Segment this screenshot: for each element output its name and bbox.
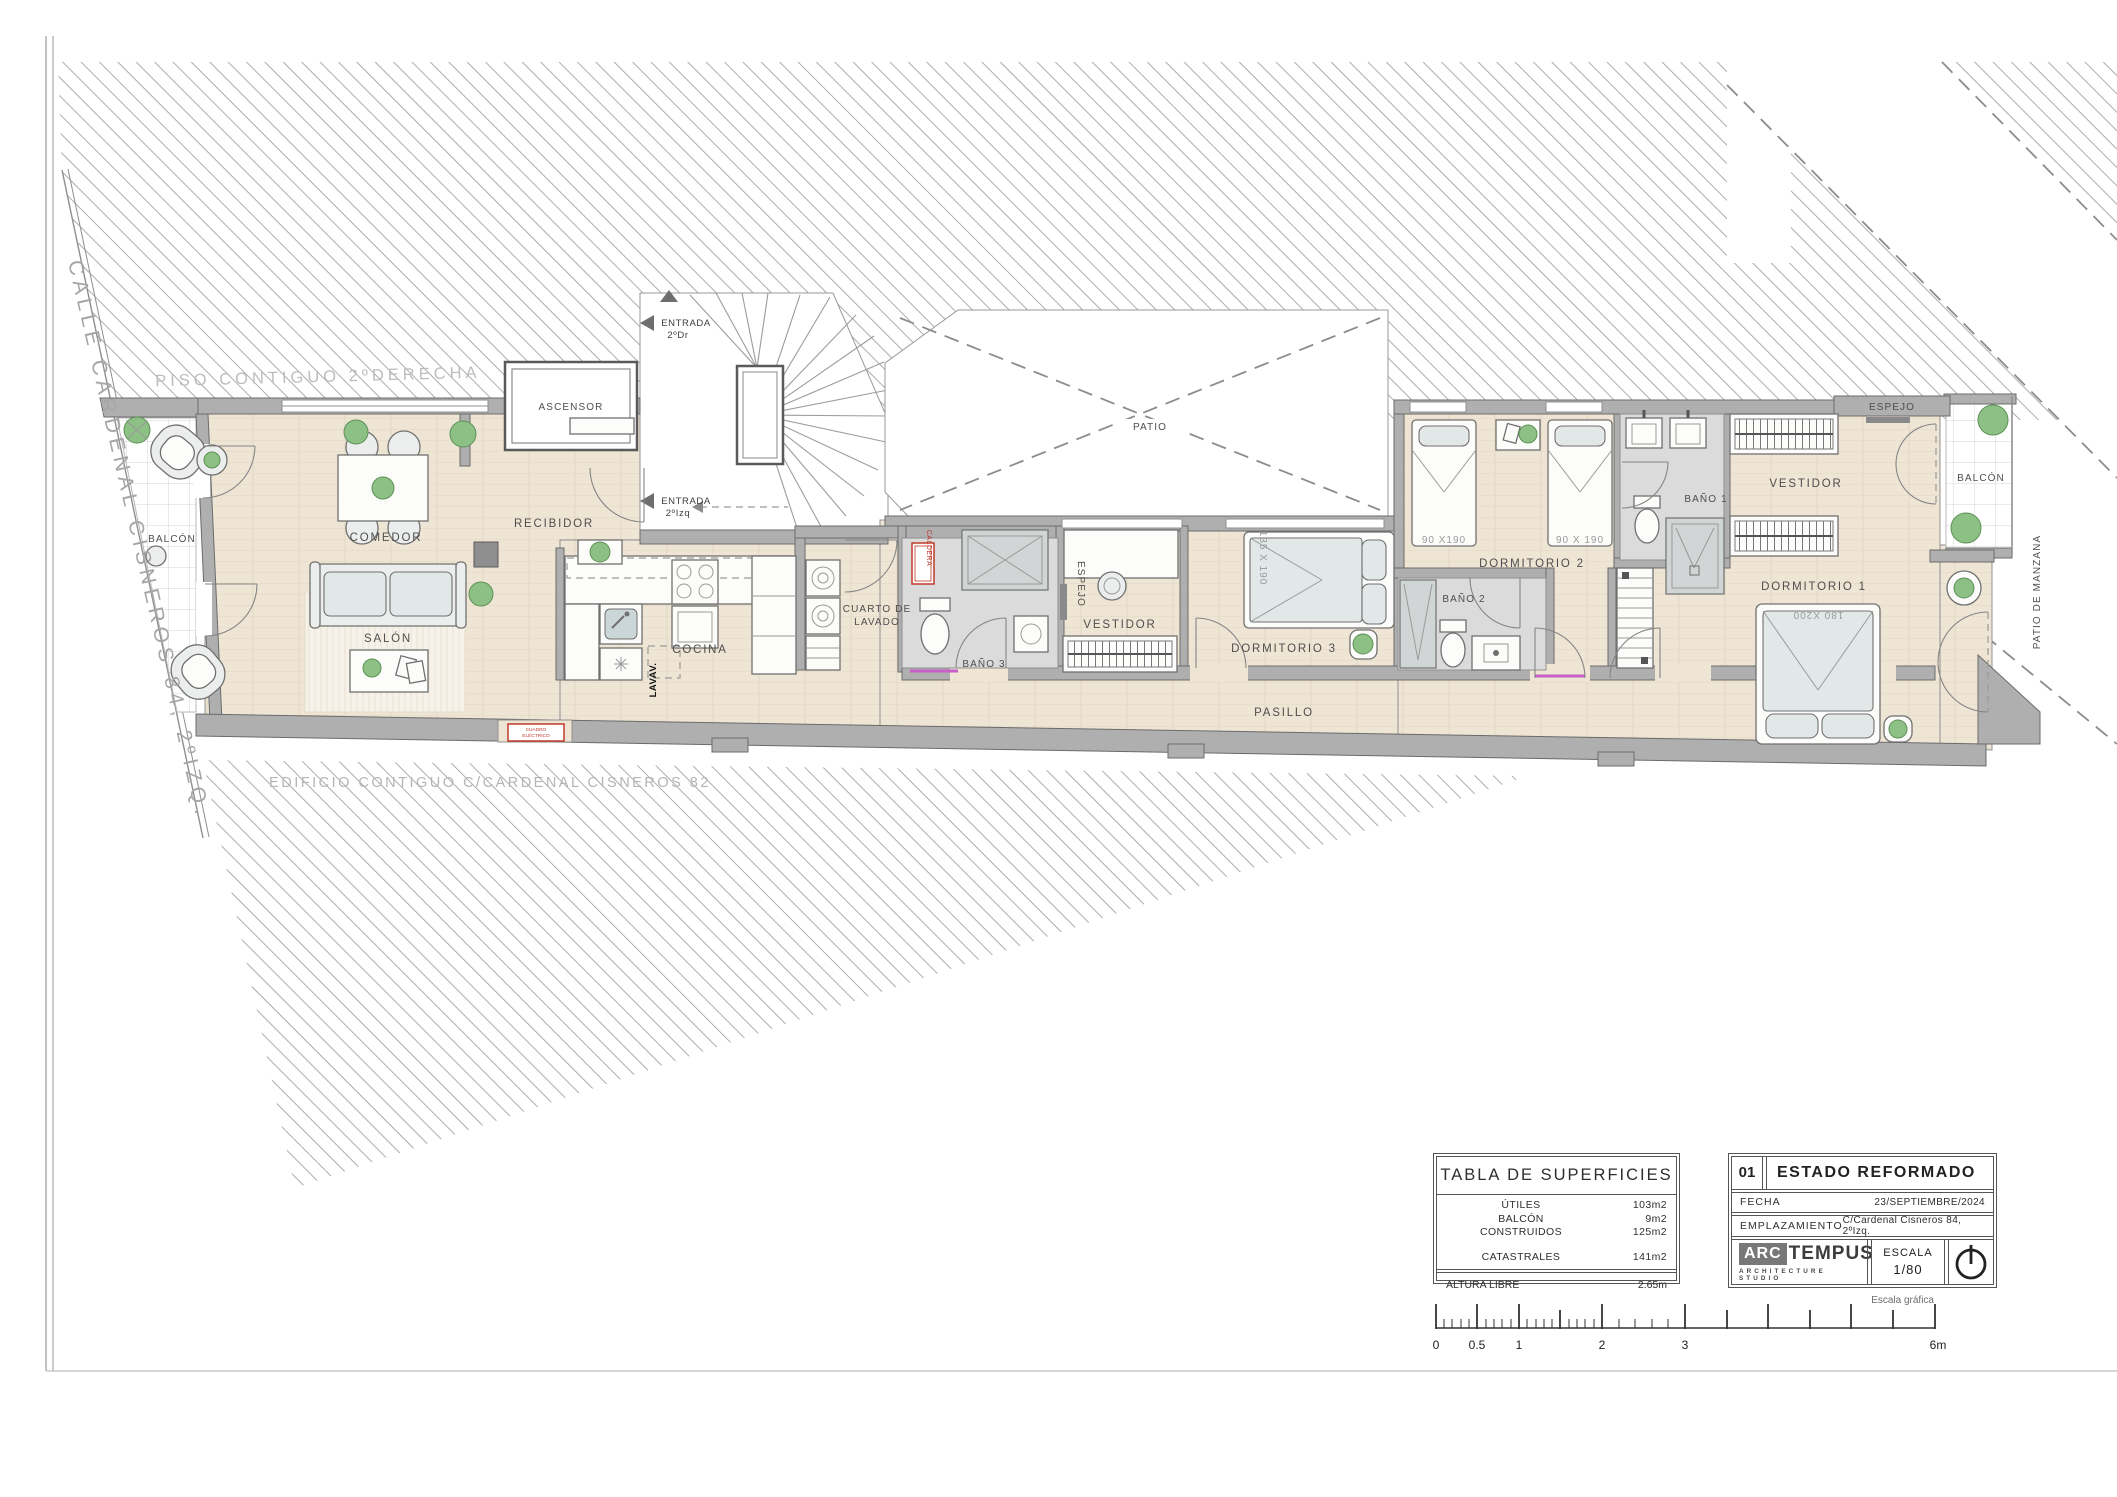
entrada-dr-label: ENTRADA	[661, 318, 711, 329]
lavav-label: LAVAV.	[648, 663, 659, 698]
fecha-row: FECHA 23/SEPTIEMBRE/2024	[1732, 1193, 1993, 1212]
title-block-header: 01 ESTADO REFORMADO	[1732, 1157, 1993, 1189]
room-salon: SALÓN	[364, 632, 412, 645]
nightstand	[1496, 420, 1540, 450]
column	[474, 542, 498, 567]
bed-135-label: 135 X 190	[1257, 531, 1268, 586]
scale-tick-6m: 6m	[1930, 1338, 1947, 1352]
arctempus-logo: ARC TEMPUS ARCHITECTURE STUDIO	[1732, 1240, 1867, 1284]
room-balcon-left: BALCÓN	[148, 532, 196, 545]
escala-cell: ESCALA 1/80	[1872, 1240, 1944, 1284]
entrada-dr-floor: 2ºDr	[667, 330, 688, 341]
wardrobe-top	[1730, 414, 1838, 454]
cuadro-electrico-line2: ELÉCTRICO	[522, 732, 550, 739]
room-cocina: COCINA	[672, 644, 728, 656]
row-label: CONSTRUIDOS	[1446, 1226, 1596, 1240]
hatch-bottom-band	[203, 760, 1528, 1188]
recibidor-furniture	[570, 418, 634, 434]
stool	[1098, 572, 1126, 600]
entrada-izq-floor: 2ºIzq	[666, 508, 690, 519]
scale-tick-0: 0	[1433, 1338, 1440, 1352]
surface-table-title: TABLA DE SUPERFICIES	[1437, 1157, 1676, 1192]
stair-shaft	[737, 366, 783, 464]
north-icon	[1949, 1240, 1993, 1284]
radiator	[1617, 568, 1653, 668]
bed-90-left	[1412, 420, 1476, 546]
row-value: 9m2	[1645, 1213, 1667, 1227]
planter	[1350, 630, 1377, 659]
bed-90a-label: 90 X190	[1422, 535, 1466, 546]
row-value: 2.65m	[1638, 1279, 1667, 1291]
table-row: BALCÓN9m2	[1437, 1213, 1676, 1227]
plant	[590, 542, 610, 562]
scale-caption: Escala gráfica	[1871, 1295, 1934, 1306]
row-value: 125m2	[1633, 1226, 1667, 1240]
escala-label: ESCALA	[1883, 1247, 1932, 1259]
plant	[344, 420, 368, 444]
drawing-sheet: CUADRO ELÉCTRICO 0	[0, 0, 2117, 1497]
patio-manzana-label: PATIO DE MANZANA	[2032, 535, 2043, 649]
vanity-3	[1014, 616, 1048, 652]
fecha-label: FECHA	[1740, 1196, 1781, 1208]
row-label: BALCÓN	[1446, 1213, 1596, 1227]
mirror-strip	[1866, 417, 1910, 423]
room-bano3: BAÑO 3	[962, 657, 1005, 670]
fecha-value: 23/SEPTIEMBRE/2024	[1874, 1197, 1985, 1208]
shower-1	[1666, 518, 1724, 594]
cuadro-electrico-line1: CUADRO	[526, 727, 547, 733]
table-row: CONSTRUIDOS125m2	[1437, 1226, 1676, 1240]
mirror-mid	[1060, 584, 1067, 620]
planter	[1884, 716, 1912, 742]
entrada-izq-label: ENTRADA	[661, 496, 711, 507]
adjacent-bottom-label: EDIFICIO CONTIGUO C/CARDENAL CISNEROS 82	[269, 775, 711, 791]
room-vestidor-right: VESTIDOR	[1769, 478, 1842, 490]
title-block-footer: ARC TEMPUS ARCHITECTURE STUDIO ESCALA 1/…	[1732, 1240, 1993, 1284]
toilet-1	[1634, 496, 1660, 543]
scale-bar: 0 0.5 1 2 3 6m Escala gráfica	[1433, 1295, 1947, 1352]
dryer	[806, 598, 840, 634]
logo-tempus: TEMPUS	[1789, 1243, 1874, 1265]
emplazamiento-value: C/Cardenal Cisneros 84, 2ºIzq.	[1843, 1215, 1985, 1237]
laundry	[806, 560, 840, 670]
emplazamiento-row: EMPLAZAMIENTO C/Cardenal Cisneros 84, 2º…	[1732, 1216, 1993, 1236]
row-label: ÚTILES	[1446, 1199, 1596, 1213]
room-recibidor: RECIBIDOR	[514, 518, 594, 530]
room-cuarto-lavado-1: CUARTO DE	[843, 604, 911, 615]
room-espejo-right: ESPEJO	[1869, 402, 1915, 413]
patio-label: PATIO	[1133, 422, 1167, 433]
logo-subtitle: ARCHITECTURE STUDIO	[1739, 1268, 1867, 1282]
row-label: ALTURA LIBRE	[1446, 1279, 1519, 1291]
scale-tick-05: 0.5	[1469, 1338, 1486, 1352]
wardrobe-bottom	[1730, 516, 1838, 556]
escala-value: 1/80	[1893, 1262, 1922, 1277]
sheet-number: 01	[1732, 1157, 1762, 1189]
patio	[885, 310, 1388, 516]
table-row: ÚTILES103m2	[1437, 1199, 1676, 1213]
room-cuarto-lavado-2: LAVADO	[854, 617, 900, 628]
room-dormitorio3: DORMITORIO 3	[1231, 643, 1337, 655]
wardrobe-mid	[1063, 636, 1177, 672]
caldera-label: CALDERA	[925, 530, 932, 567]
row-value: 141m2	[1633, 1251, 1667, 1265]
kitchen-tall-cabinet	[752, 556, 796, 674]
room-ascensor: ASCENSOR	[539, 402, 604, 413]
room-bano2: BAÑO 2	[1442, 592, 1485, 605]
room-balcon-right: BALCÓN	[1957, 471, 2005, 484]
scale-tick-2: 2	[1599, 1338, 1606, 1352]
scale-tick-1: 1	[1516, 1338, 1523, 1352]
sheet-title: ESTADO REFORMADO	[1767, 1157, 1993, 1189]
hatch-notch	[1727, 85, 1791, 263]
vanity-2	[1472, 636, 1520, 670]
table-row-altura: ALTURA LIBRE2.65m	[1437, 1272, 1676, 1291]
bed-180-label: 180 X200	[1793, 609, 1844, 620]
scale-tick-3: 3	[1682, 1338, 1689, 1352]
round-planter	[1947, 571, 1981, 605]
room-dormitorio2: DORMITORIO 2	[1479, 558, 1585, 570]
logo-arc: ARC	[1739, 1243, 1787, 1265]
room-comedor: COMEDOR	[350, 532, 423, 544]
row-value: 103m2	[1633, 1199, 1667, 1213]
room-dormitorio1: DORMITORIO 1	[1761, 581, 1867, 593]
electrical-panel: CUADRO ELÉCTRICO	[498, 720, 572, 742]
bed-90-right	[1548, 420, 1612, 546]
table-row: CATASTRALES141m2	[1437, 1251, 1676, 1265]
room-pasillo: PASILLO	[1254, 707, 1314, 719]
row-label: CATASTRALES	[1446, 1251, 1596, 1265]
plant	[450, 421, 476, 447]
surface-table: TABLA DE SUPERFICIES ÚTILES103m2 BALCÓN9…	[1433, 1153, 1680, 1284]
title-block: 01 ESTADO REFORMADO FECHA 23/SEPTIEMBRE/…	[1728, 1153, 1997, 1288]
toilet-3	[920, 598, 950, 654]
bed-90b-label: 90 X 190	[1556, 535, 1604, 546]
emplazamiento-label: EMPLAZAMIENTO	[1740, 1220, 1843, 1232]
toilet-2	[1440, 620, 1466, 667]
washer	[806, 560, 840, 596]
room-espejo-mid: ESPEJO	[1075, 561, 1086, 607]
room-bano1: BAÑO 1	[1684, 492, 1727, 505]
plant	[469, 582, 493, 606]
room-vestidor-mid: VESTIDOR	[1083, 619, 1156, 631]
